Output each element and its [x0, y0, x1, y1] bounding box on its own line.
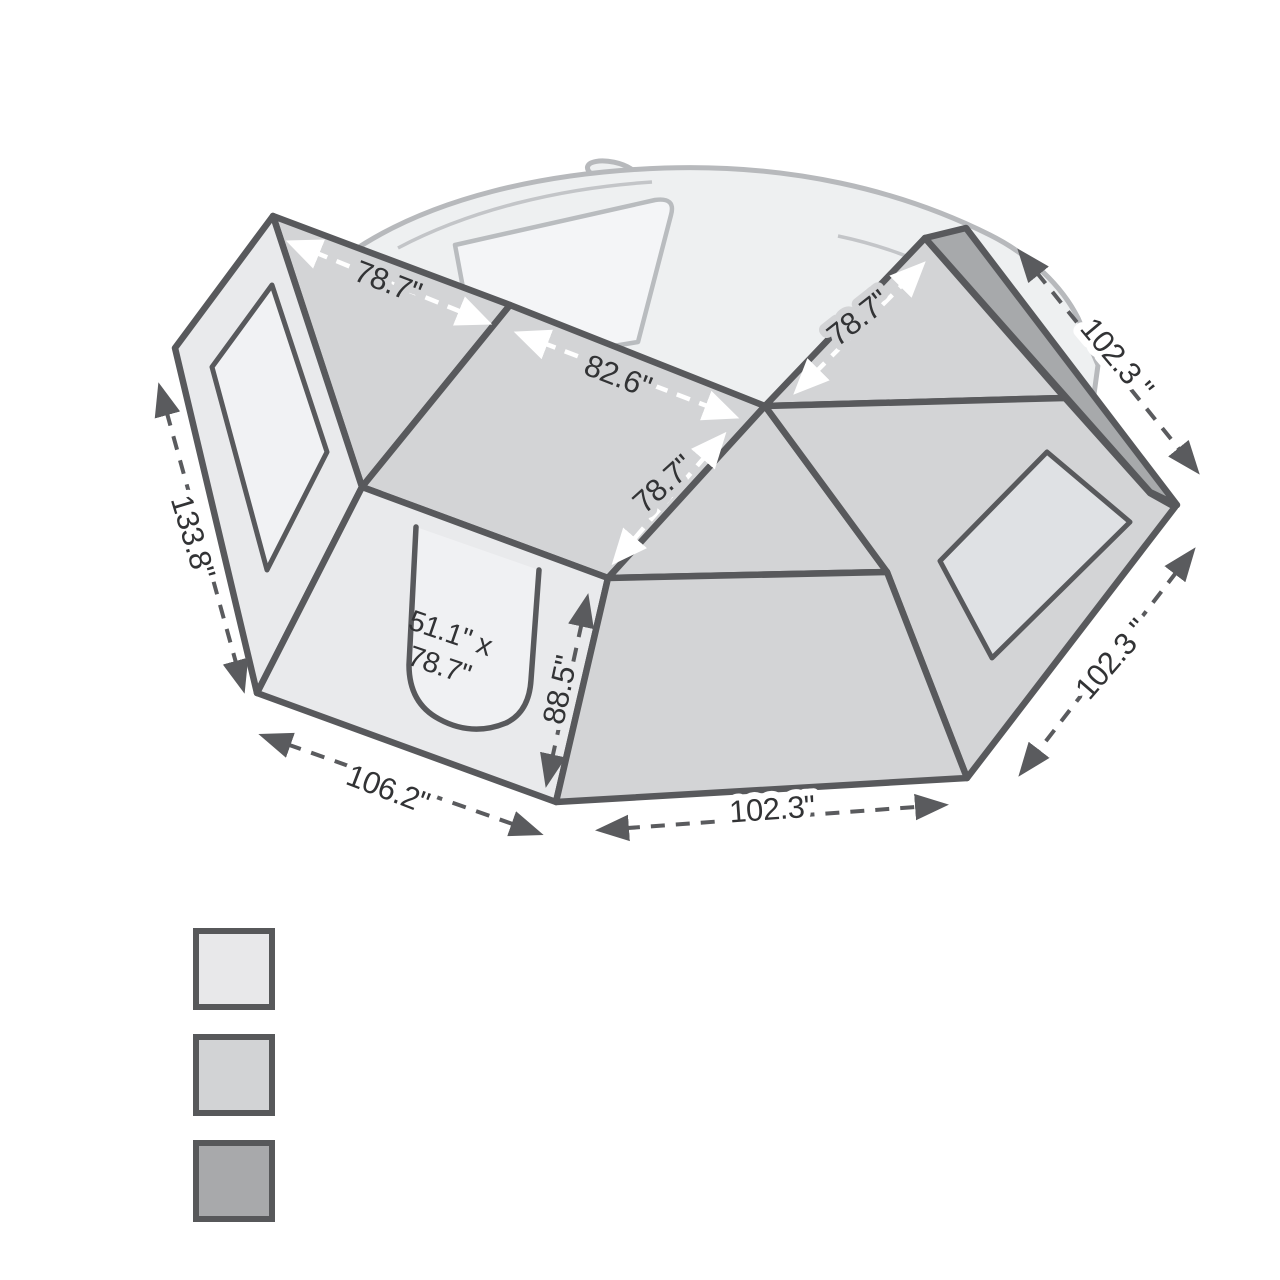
legend-swatch-light-fabric: [196, 931, 272, 1007]
dim-door-wall-width: 106.2": [342, 757, 434, 820]
dim-front-wall-width: 102.3": [728, 789, 816, 830]
legend: [196, 931, 272, 1219]
diagram-canvas: 78.7" 82.6" 78.7" 78.7" 133.8" 106.2" 10…: [0, 0, 1280, 1280]
awning-dimension-diagram: 78.7" 82.6" 78.7" 78.7" 133.8" 106.2" 10…: [0, 0, 1280, 1280]
legend-swatch-mid-fabric: [196, 1037, 272, 1113]
legend-swatch-dark-mount-strip: [196, 1143, 272, 1219]
